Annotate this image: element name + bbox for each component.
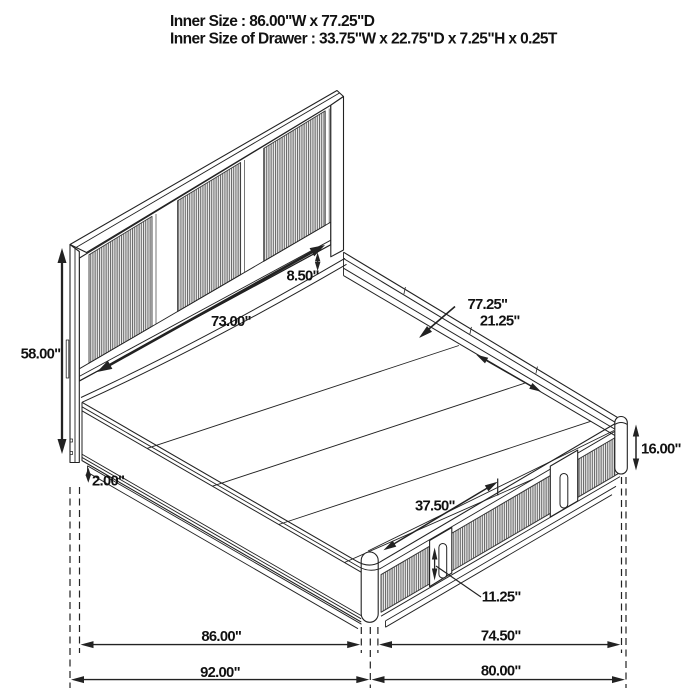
svg-text:21.25": 21.25" [480,314,521,330]
svg-text:2.00": 2.00" [92,474,125,490]
svg-text:11.25": 11.25" [482,590,522,606]
svg-text:80.00": 80.00" [481,664,522,680]
svg-text:86.00": 86.00" [201,629,242,645]
svg-text:Inner Size of Drawer : 33.75"W: Inner Size of Drawer : 33.75"W x 22.75"D… [170,31,558,48]
svg-text:8.50": 8.50" [287,269,320,285]
svg-text:92.00": 92.00" [200,665,241,681]
svg-text:77.25": 77.25" [468,297,509,313]
svg-text:74.50": 74.50" [481,629,522,645]
svg-text:73.00": 73.00" [211,314,252,330]
svg-text:37.50": 37.50" [415,499,456,515]
svg-text:Inner Size : 86.00"W x 77.25"D: Inner Size : 86.00"W x 77.25"D [170,13,375,30]
svg-text:16.00": 16.00" [641,442,682,458]
svg-text:58.00": 58.00" [21,347,62,363]
